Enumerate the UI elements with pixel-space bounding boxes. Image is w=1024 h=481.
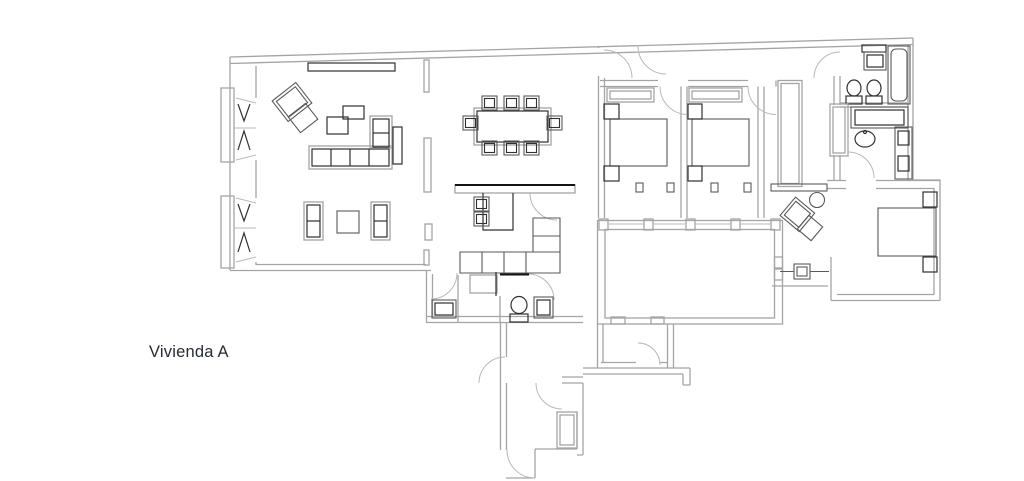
lounge-chair bbox=[272, 83, 318, 133]
round-table bbox=[810, 193, 825, 208]
hallway-closet bbox=[771, 81, 827, 192]
service-rooms bbox=[432, 272, 553, 322]
wall-shelf bbox=[308, 63, 395, 71]
floor-plan-page: Vivienda A bbox=[0, 0, 1024, 481]
wardrobe bbox=[607, 88, 654, 102]
toilet bbox=[846, 80, 862, 104]
bedroom-2 bbox=[688, 88, 751, 192]
bathtub bbox=[888, 46, 910, 104]
toilet bbox=[510, 297, 528, 323]
bidet bbox=[866, 80, 882, 104]
vanity bbox=[851, 107, 908, 128]
side-table bbox=[393, 127, 402, 164]
dining-area bbox=[463, 96, 562, 155]
nightstand bbox=[923, 257, 937, 272]
nightstand bbox=[604, 166, 619, 181]
counter-bar bbox=[455, 185, 575, 193]
facade-windows bbox=[221, 88, 256, 268]
wardrobe bbox=[689, 88, 742, 102]
armchair-pair bbox=[304, 202, 390, 240]
patio bbox=[598, 219, 783, 324]
console-shelf bbox=[771, 184, 827, 191]
living-room bbox=[272, 63, 402, 240]
bathroom-2 bbox=[830, 104, 912, 179]
nightstand bbox=[923, 192, 937, 207]
shower-column bbox=[895, 127, 912, 179]
bathroom-1 bbox=[846, 45, 910, 104]
lounge-chair bbox=[780, 197, 823, 241]
closet bbox=[830, 104, 848, 156]
floor-plan-drawing bbox=[0, 0, 1024, 481]
plan-label: Vivienda A bbox=[149, 343, 229, 362]
radiator bbox=[780, 264, 829, 279]
study-area bbox=[455, 185, 575, 230]
nightstand bbox=[688, 166, 702, 181]
window-shutter-icon bbox=[238, 104, 250, 252]
master-bedroom bbox=[780, 192, 937, 279]
nightstand bbox=[604, 104, 619, 119]
bed bbox=[610, 119, 667, 166]
corner-sofa bbox=[309, 116, 392, 169]
shower bbox=[534, 297, 553, 318]
sink bbox=[862, 45, 886, 70]
bed bbox=[878, 208, 936, 256]
bedroom-1 bbox=[604, 88, 674, 192]
nightstand bbox=[688, 104, 702, 119]
occasional-table bbox=[337, 211, 359, 233]
dining-chairs bbox=[463, 96, 562, 155]
dining-table bbox=[474, 108, 551, 145]
sink bbox=[855, 131, 875, 148]
entry-stairs bbox=[557, 412, 577, 448]
bed bbox=[692, 119, 749, 166]
